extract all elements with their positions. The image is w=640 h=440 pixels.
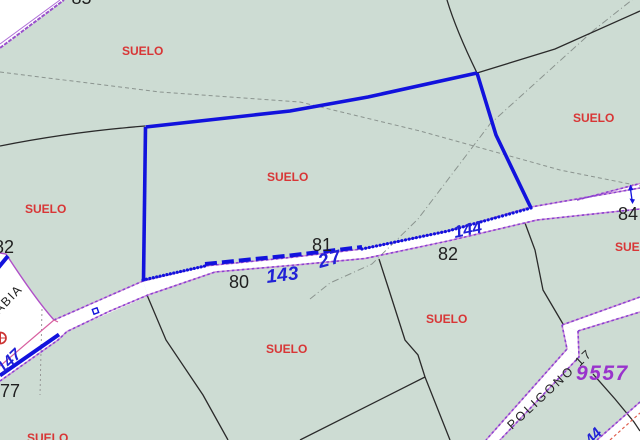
svg-text:SUELO: SUELO: [615, 240, 640, 254]
svg-text:SUELO: SUELO: [267, 170, 308, 184]
svg-text:143: 143: [265, 263, 300, 288]
svg-text:84: 84: [618, 204, 638, 224]
svg-text:77: 77: [0, 381, 20, 401]
svg-text:SUELO: SUELO: [266, 342, 307, 356]
svg-text:SUELO: SUELO: [573, 111, 614, 125]
svg-text:82: 82: [0, 237, 14, 257]
svg-text:85: 85: [72, 0, 92, 8]
svg-text:SUELO: SUELO: [122, 44, 163, 58]
svg-text:80: 80: [229, 272, 249, 292]
svg-text:82: 82: [438, 244, 458, 264]
svg-text:SUELO: SUELO: [25, 202, 66, 216]
svg-text:SUELO: SUELO: [426, 312, 467, 326]
svg-text:SUELO: SUELO: [27, 431, 68, 440]
